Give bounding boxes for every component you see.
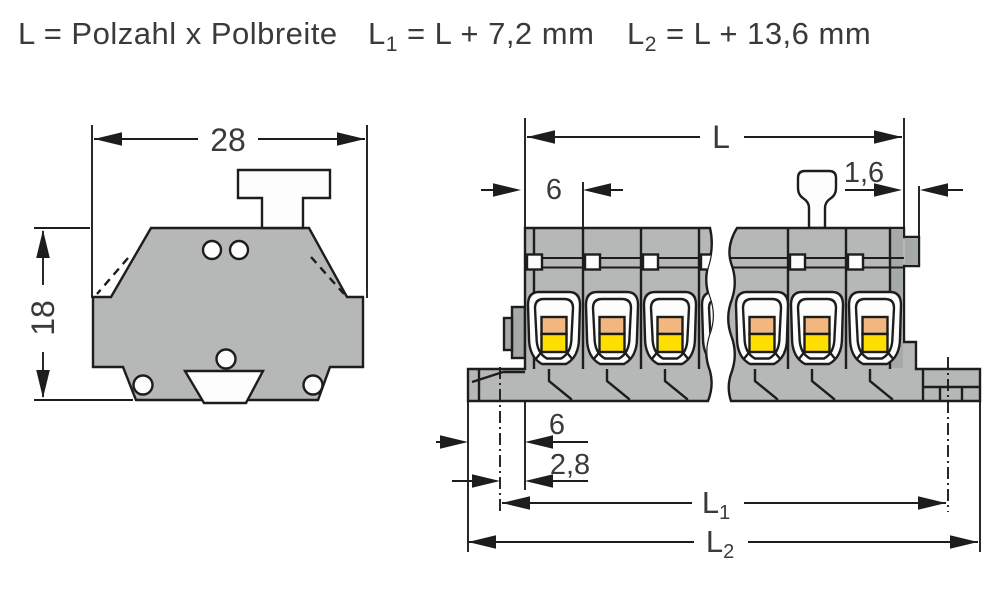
dimension-hole-offset: 2,8 bbox=[452, 449, 590, 488]
l2-formula: L2= L + 13,6 mm bbox=[627, 16, 871, 56]
formula-bar: L = Polzahl x Polbreite L1= L + 7,2 mm L… bbox=[18, 16, 871, 56]
l1-label: L1 bbox=[702, 485, 730, 524]
hole-offset-label: 2,8 bbox=[550, 449, 590, 481]
foot-offset-label: 6 bbox=[549, 409, 565, 441]
l1-formula: L1= L + 7,2 mm bbox=[368, 16, 594, 56]
dimension-l1: L1 bbox=[502, 485, 946, 524]
dimension-pole-width: 6 bbox=[481, 174, 623, 228]
end-lug bbox=[905, 238, 918, 265]
release-knob bbox=[798, 171, 836, 228]
pitch-formula: L = Polzahl x Polbreite bbox=[18, 16, 338, 51]
terminal-block-dimension-drawing: L = Polzahl x Polbreite L1= L + 7,2 mm L… bbox=[0, 0, 1000, 592]
front-view: L 6 1,6 6 bbox=[436, 118, 980, 563]
dimension-l2: L2 bbox=[468, 524, 978, 563]
width-label: 28 bbox=[210, 122, 246, 158]
side-view: 28 18 bbox=[25, 122, 367, 403]
dimension-foot-offset: 6 bbox=[436, 409, 588, 449]
left-step-inner bbox=[504, 318, 512, 350]
l2-label: L2 bbox=[706, 524, 734, 563]
end-plate-label: 1,6 bbox=[844, 157, 884, 189]
mounting-tab bbox=[238, 170, 330, 228]
pole-width-label: 6 bbox=[546, 174, 562, 206]
drawing-canvas: L = Polzahl x Polbreite L1= L + 7,2 mm L… bbox=[0, 0, 1000, 592]
left-step-outer bbox=[512, 307, 525, 358]
total-length-label: L bbox=[712, 119, 730, 155]
height-label: 18 bbox=[25, 300, 61, 336]
